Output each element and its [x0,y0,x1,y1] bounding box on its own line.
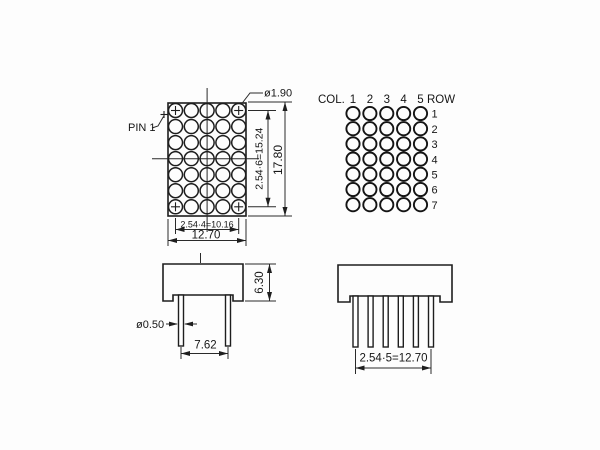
body-height-dimension: 6.30 [254,271,266,293]
led-dot [397,153,410,166]
led-dot [169,136,183,150]
col-header: COL. [318,94,345,106]
front-view: PIN 1 ø1.90 2.54·6=15.24 17.80 2.54·4=10… [128,88,292,247]
pin [413,296,418,347]
led-dot [169,184,183,198]
pin [429,296,434,347]
arrowhead [266,198,271,207]
pin-pitch-dimension: 2.54·5=12.70 [359,353,427,365]
led-dot [414,137,427,150]
arrowhead [356,366,365,371]
led-dot [397,168,410,181]
led-dot [346,183,359,196]
led-dot [380,107,393,120]
led-dot [414,183,427,196]
led-dot [216,120,230,134]
col-pitch-dimension: 2.54·4=10.16 [180,220,233,230]
led-dot [380,168,393,181]
led-dot [397,183,410,196]
led-dot [346,198,359,211]
arrowhead [283,207,288,216]
pin [398,296,403,347]
led-dot [414,198,427,211]
led-dot [363,122,376,135]
pin1-label: PIN 1 [128,122,156,134]
row-number: 4 [432,154,438,166]
led-dot [380,183,393,196]
arrowhead [267,264,272,273]
led-dot [232,136,246,150]
led-dot [363,198,376,211]
led-dot [169,120,183,134]
technical-drawing: PIN 1 ø1.90 2.54·6=15.24 17.80 2.54·4=10… [0,0,600,450]
led-dot [184,136,198,150]
arrowhead [219,351,228,356]
led-dot [380,122,393,135]
arrowhead [181,351,190,356]
led-dot [363,153,376,166]
led-dot [184,104,198,118]
width-dimension: 12.70 [192,230,221,242]
row-number: 7 [432,200,438,212]
led-dot [216,168,230,182]
led-dot [346,122,359,135]
pin-map: COL. 1 2 3 4 5 ROW 1 2 3 4 5 6 7 [318,94,455,212]
col-number: 1 [350,94,356,106]
led-dot [363,168,376,181]
row-number: 1 [432,109,438,121]
led-dot [414,107,427,120]
led-dot [184,168,198,182]
pin-row-view: 2.54·5=12.70 [338,265,452,374]
led-dot [380,198,393,211]
arrowhead [266,111,271,120]
row-number: 2 [432,124,438,136]
led-dot [363,107,376,120]
arrowhead [184,322,193,327]
led-dot [414,168,427,181]
led-dot [216,200,230,214]
led-dot [397,122,410,135]
dot-diameter-label: ø1.90 [264,88,292,100]
led-dot [169,168,183,182]
pin [179,295,184,346]
pin-row-spacing-dimension: 7.62 [194,340,216,352]
led-dot [380,137,393,150]
side-view: 6.30 ø0.50 7.62 [136,253,276,359]
row-header: ROW [427,94,455,106]
arrowhead [237,238,246,243]
arrowhead [283,102,288,111]
led-dot [216,136,230,150]
dot-matrix-datasheet-drawing: PIN 1 ø1.90 2.54·6=15.24 17.80 2.54·4=10… [0,0,600,450]
led-dot [184,200,198,214]
pin [383,296,388,347]
row-number: 5 [432,170,438,182]
led-dot [414,153,427,166]
pin [368,296,373,347]
led-dot [363,183,376,196]
col-number: 4 [400,94,407,106]
pin [226,295,231,346]
led-dot [363,137,376,150]
col-number: 2 [367,94,373,106]
led-dot [397,198,410,211]
led-dot [346,137,359,150]
pin [353,296,358,347]
led-dot [397,137,410,150]
col-number: 5 [417,94,423,106]
arrowhead [267,292,272,301]
led-dot [232,168,246,182]
led-dot [346,168,359,181]
row-number: 6 [432,185,438,197]
led-dot [216,104,230,118]
led-dot [397,107,410,120]
row-number: 3 [432,139,438,151]
arrowhead [422,366,431,371]
led-dot [184,120,198,134]
height-dimension: 17.80 [271,145,285,175]
pin-diameter-label: ø0.50 [136,319,164,331]
col-number: 3 [384,94,390,106]
led-dot-grid [346,107,427,211]
led-dot [216,184,230,198]
led-dot [346,153,359,166]
led-dot [414,122,427,135]
led-dot [232,184,246,198]
led-dot [380,153,393,166]
led-dot [184,184,198,198]
arrowhead [169,322,178,327]
row-pitch-dimension: 2.54·6=15.24 [254,127,266,189]
arrowhead [168,238,177,243]
led-dot [232,120,246,134]
led-dot [346,107,359,120]
